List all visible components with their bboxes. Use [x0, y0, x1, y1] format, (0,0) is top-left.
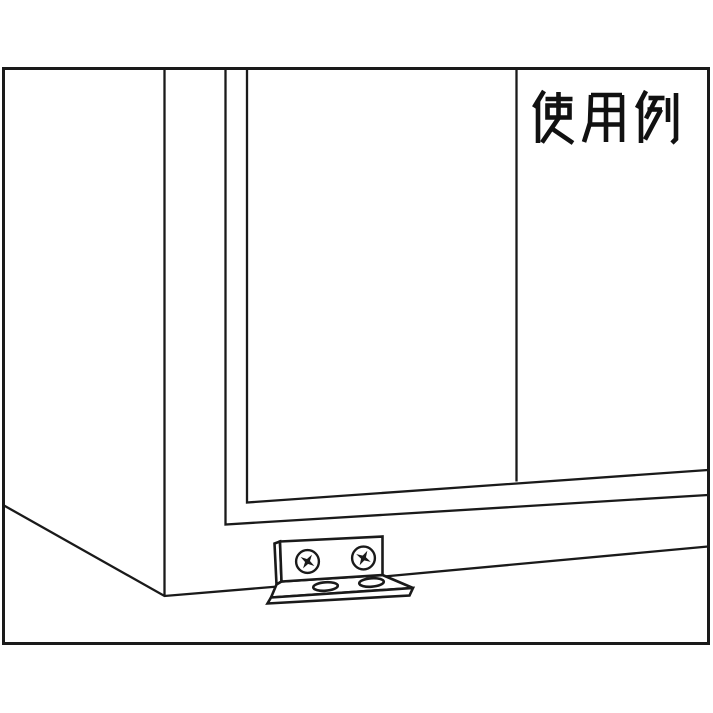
- phillips-screw-icon: [352, 547, 375, 570]
- usage-example-illustration: [0, 0, 713, 713]
- flange-hole-icon: [359, 577, 384, 587]
- kanji-rei: [637, 91, 676, 143]
- kanji-you: [584, 95, 622, 142]
- flange-hole-icon: [313, 581, 338, 591]
- cabinet-side-bottom-edge: [4, 506, 278, 597]
- illustration-canvas: 使用例: [0, 0, 713, 713]
- cabinet-base-bottom-edge: [384, 547, 708, 577]
- usage-example-kanji: [534, 91, 676, 143]
- l-bracket: [268, 537, 414, 604]
- kanji-shi: [534, 91, 573, 143]
- phillips-screw-icon: [296, 550, 319, 573]
- cabinet-outline: [4, 70, 708, 597]
- door-opening-jamb-edge: [226, 70, 709, 525]
